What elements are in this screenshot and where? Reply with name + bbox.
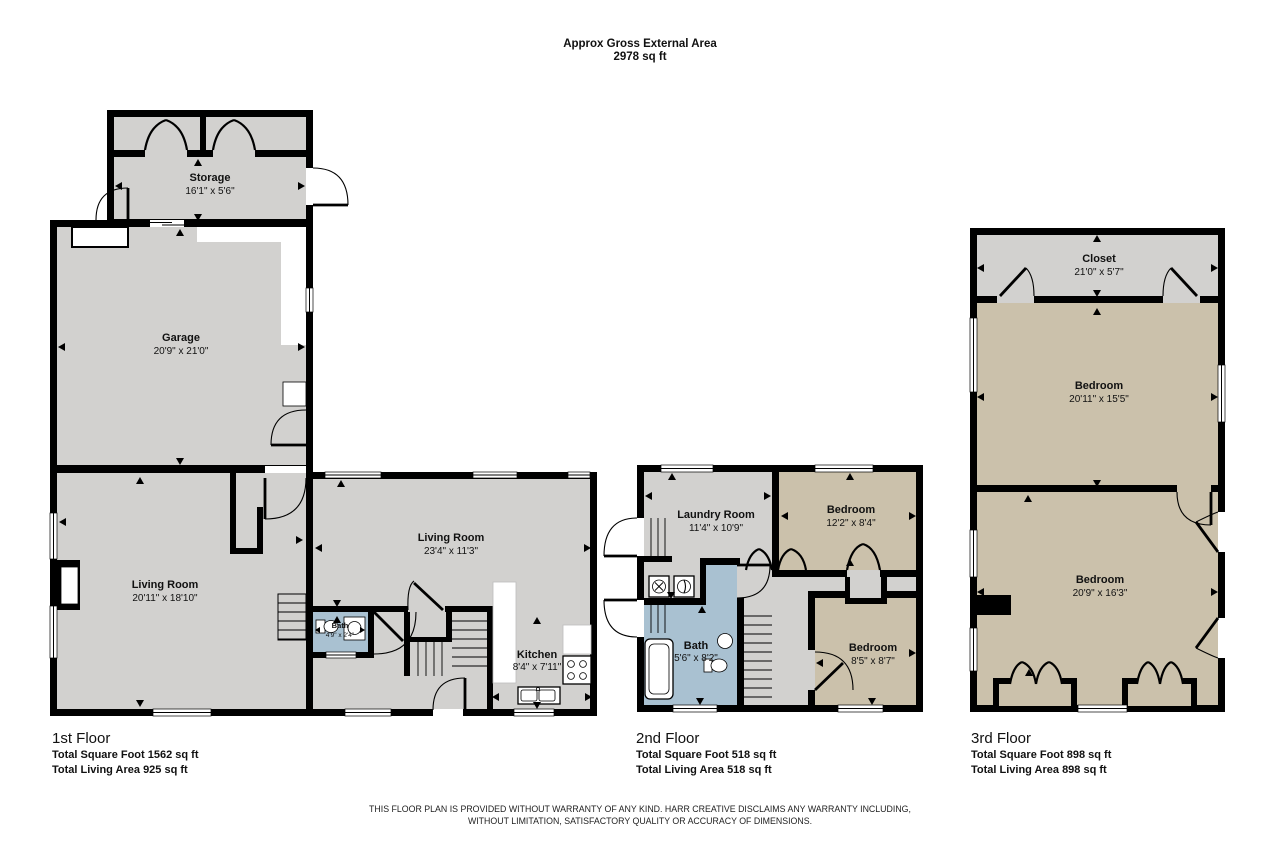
window: [50, 606, 57, 658]
stove-icon: [563, 656, 591, 684]
utility-box: [283, 382, 306, 406]
washer-icon: [649, 576, 669, 597]
room-living-room-2: [313, 479, 590, 709]
room-dims: 11'4" x 10'9": [689, 523, 744, 534]
room-dims: 20'9" x 21'0": [154, 346, 209, 357]
window: [306, 288, 313, 312]
dryer-icon: [674, 576, 694, 597]
closet-walls: [845, 577, 887, 604]
window: [473, 472, 517, 478]
room-label: Garage: [162, 332, 200, 344]
window: [50, 513, 57, 559]
window: [838, 705, 883, 712]
window: [970, 628, 977, 671]
floor-3-summary: 3rd Floor Total Square Foot 898 sq ft To…: [971, 730, 1112, 776]
sink-icon: [718, 634, 733, 649]
room-dims: 8'5" x 8'7": [851, 656, 895, 667]
window: [673, 705, 717, 712]
room-dims: 8'4" x 7'11": [513, 662, 562, 673]
kitchen-sink-icon: [518, 687, 560, 704]
room-label: Closet: [1082, 253, 1116, 265]
window: [1078, 705, 1127, 712]
room-label: Bath: [332, 621, 349, 630]
window: [970, 530, 977, 577]
staircase: [278, 594, 306, 640]
window: [345, 709, 391, 716]
floor-plan-page: Approx Gross External Area 2978 sq ft: [0, 0, 1280, 853]
window: [970, 318, 977, 392]
window: [153, 709, 211, 716]
room-dims: 4'9" x 2'4": [326, 632, 355, 639]
room-dims: 12'2" x 8'4": [826, 518, 876, 529]
header-line1: Approx Gross External Area: [563, 38, 717, 50]
room-label: Living Room: [132, 579, 199, 591]
floor-1-plan: Storage 16'1" x 5'6" Garage 20'9" x 21'0…: [50, 110, 597, 716]
window: [815, 465, 873, 472]
floor-title: 1st Floor: [52, 730, 110, 747]
entry-step: [72, 227, 128, 247]
room-dims: 20'11" x 18'10": [132, 593, 198, 604]
disclaimer-line2: WITHOUT LIMITATION, SATISFACTORY QUALITY…: [468, 816, 812, 826]
floor-title: 2nd Floor: [636, 730, 699, 747]
floor-living-area: Total Living Area 925 sq ft: [52, 764, 188, 776]
room-label: Living Room: [418, 532, 485, 544]
window: [661, 465, 713, 472]
header-line2: 2978 sq ft: [613, 51, 666, 63]
door-swing: [604, 518, 637, 556]
window: [1218, 365, 1225, 422]
room-label: Bedroom: [1075, 380, 1124, 392]
floor-square-foot: Total Square Foot 898 sq ft: [971, 749, 1112, 761]
room-bedroom-3: [977, 303, 1218, 705]
header: Approx Gross External Area 2978 sq ft: [563, 38, 717, 63]
room-storage: [114, 117, 306, 219]
room-label: Bedroom: [849, 642, 898, 654]
floor-3-plan: Closet 21'0" x 5'7" Bedroom 20'11" x 15'…: [970, 228, 1225, 712]
floor-square-foot: Total Square Foot 518 sq ft: [636, 749, 777, 761]
floor-square-foot: Total Square Foot 1562 sq ft: [52, 749, 199, 761]
bathtub-icon: [645, 639, 673, 699]
floor-living-area: Total Living Area 518 sq ft: [636, 764, 772, 776]
room-label: Storage: [190, 172, 231, 184]
room-label: Laundry Room: [677, 509, 755, 521]
floor-1-summary: 1st Floor Total Square Foot 1562 sq ft T…: [52, 730, 199, 776]
door-swing: [313, 168, 348, 205]
window: [326, 652, 356, 658]
chimney: [971, 595, 1011, 615]
room-label: Bedroom: [1076, 574, 1125, 586]
room-dims: 21'0" x 5'7": [1074, 267, 1124, 278]
room-living-room-1: [57, 473, 306, 709]
floor-living-area: Total Living Area 898 sq ft: [971, 764, 1107, 776]
floor-plan-canvas: Approx Gross External Area 2978 sq ft: [0, 0, 1280, 853]
window: [514, 709, 554, 716]
room-dims: 20'11" x 15'5": [1069, 394, 1129, 405]
door-swing: [604, 600, 637, 637]
window: [325, 472, 381, 478]
room-dims: 5'6" x 8'2": [674, 653, 718, 664]
room-label: Kitchen: [517, 649, 558, 661]
fireplace-icon: [50, 560, 80, 610]
kitchen-counter: [563, 625, 591, 654]
room-label: Bedroom: [827, 504, 876, 516]
window: [568, 472, 590, 478]
disclaimer: THIS FLOOR PLAN IS PROVIDED WITHOUT WARR…: [369, 804, 911, 826]
floor-2-summary: 2nd Floor Total Square Foot 518 sq ft To…: [636, 730, 777, 776]
sliding-door: [150, 220, 184, 227]
room-dims: 20'9" x 16'3": [1073, 588, 1128, 599]
floor-title: 3rd Floor: [971, 730, 1031, 747]
disclaimer-line1: THIS FLOOR PLAN IS PROVIDED WITHOUT WARR…: [369, 804, 911, 814]
room-label: Bath: [684, 640, 709, 652]
room-dims: 16'1" x 5'6": [185, 186, 235, 197]
room-dims: 23'4" x 11'3": [424, 546, 479, 557]
floor-2-plan: Laundry Room 11'4" x 10'9" Bedroom 12'2"…: [604, 465, 923, 712]
